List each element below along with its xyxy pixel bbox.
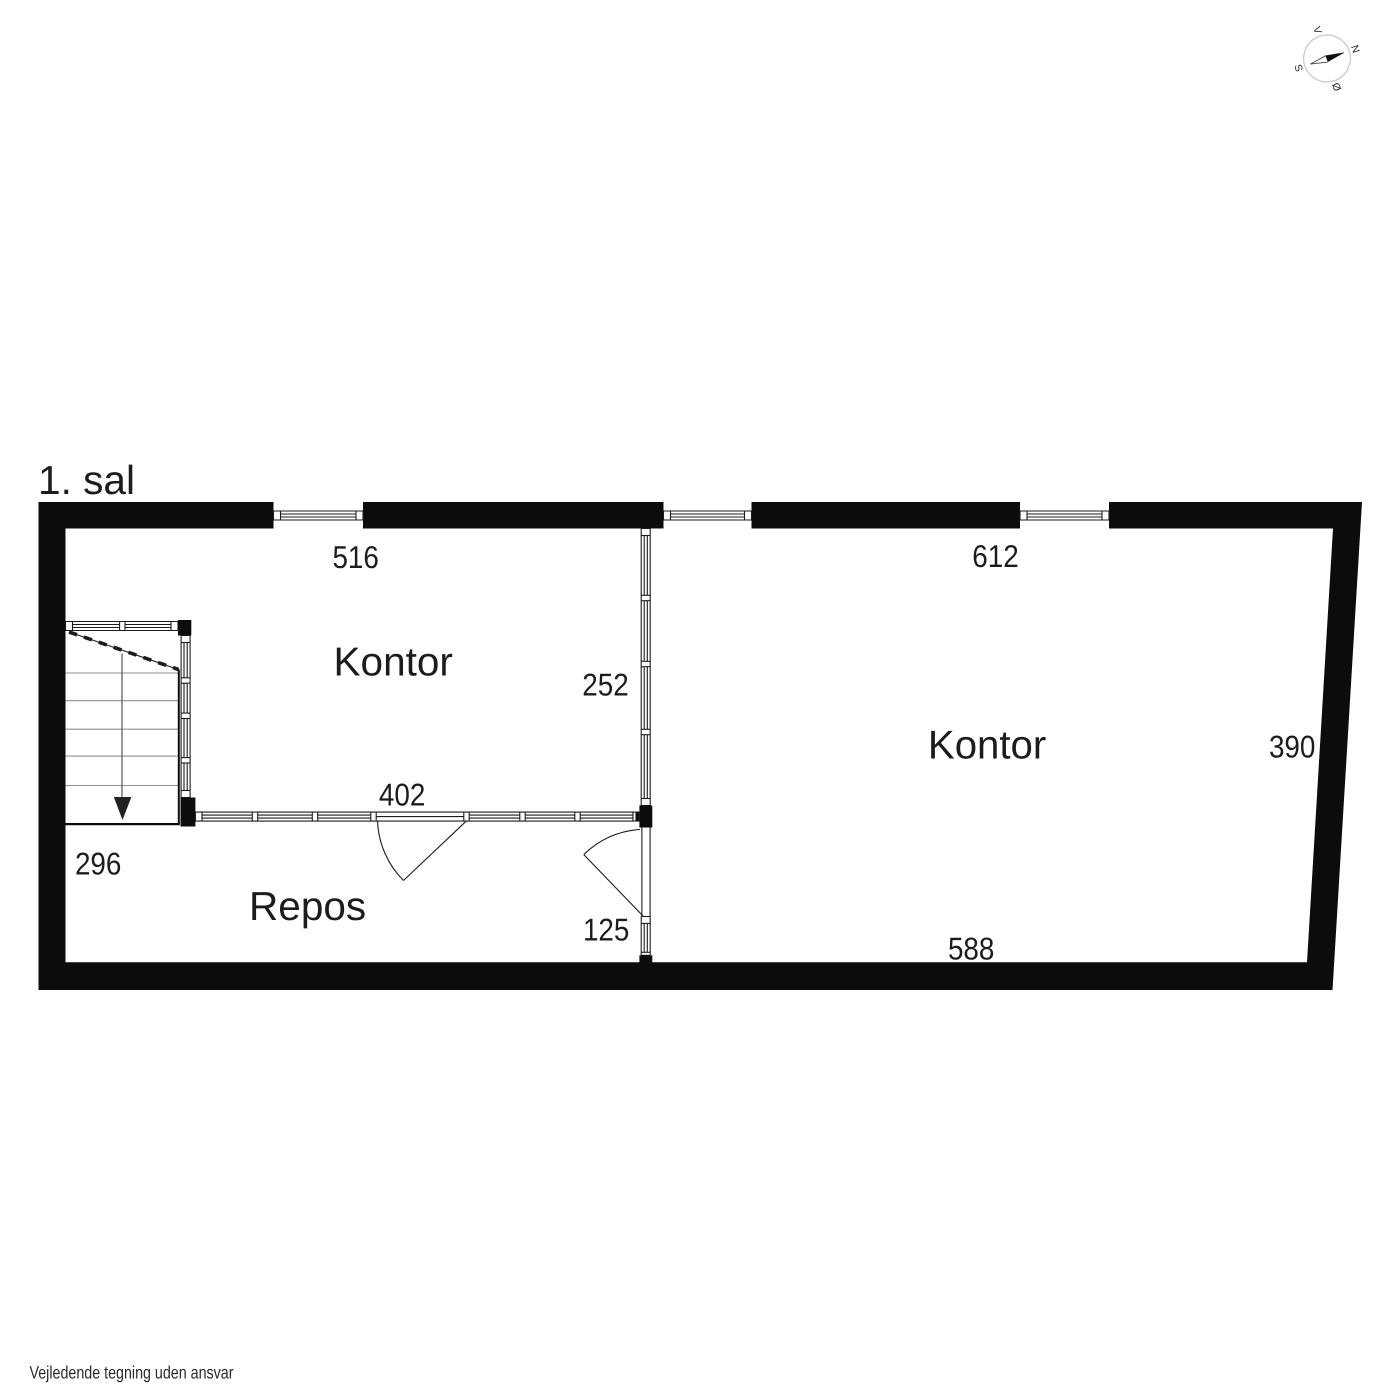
svg-text:N: N bbox=[1348, 44, 1362, 55]
svg-text:402: 402 bbox=[379, 776, 426, 812]
svg-text:S: S bbox=[1291, 63, 1305, 73]
svg-text:Kontor: Kontor bbox=[928, 723, 1046, 768]
svg-text:Ø: Ø bbox=[1329, 81, 1343, 93]
svg-text:612: 612 bbox=[972, 538, 1019, 574]
svg-text:588: 588 bbox=[948, 930, 995, 966]
svg-text:Vejledende tegning uden ansvar: Vejledende tegning uden ansvar bbox=[30, 1363, 234, 1383]
svg-text:Kontor: Kontor bbox=[334, 639, 453, 685]
svg-text:Repos: Repos bbox=[249, 883, 366, 929]
svg-text:516: 516 bbox=[332, 539, 379, 575]
svg-text:V: V bbox=[1310, 25, 1324, 35]
svg-text:390: 390 bbox=[1269, 729, 1316, 765]
svg-text:125: 125 bbox=[583, 912, 630, 948]
svg-text:252: 252 bbox=[582, 666, 629, 702]
svg-text:296: 296 bbox=[75, 846, 122, 882]
svg-text:1. sal: 1. sal bbox=[38, 457, 135, 503]
